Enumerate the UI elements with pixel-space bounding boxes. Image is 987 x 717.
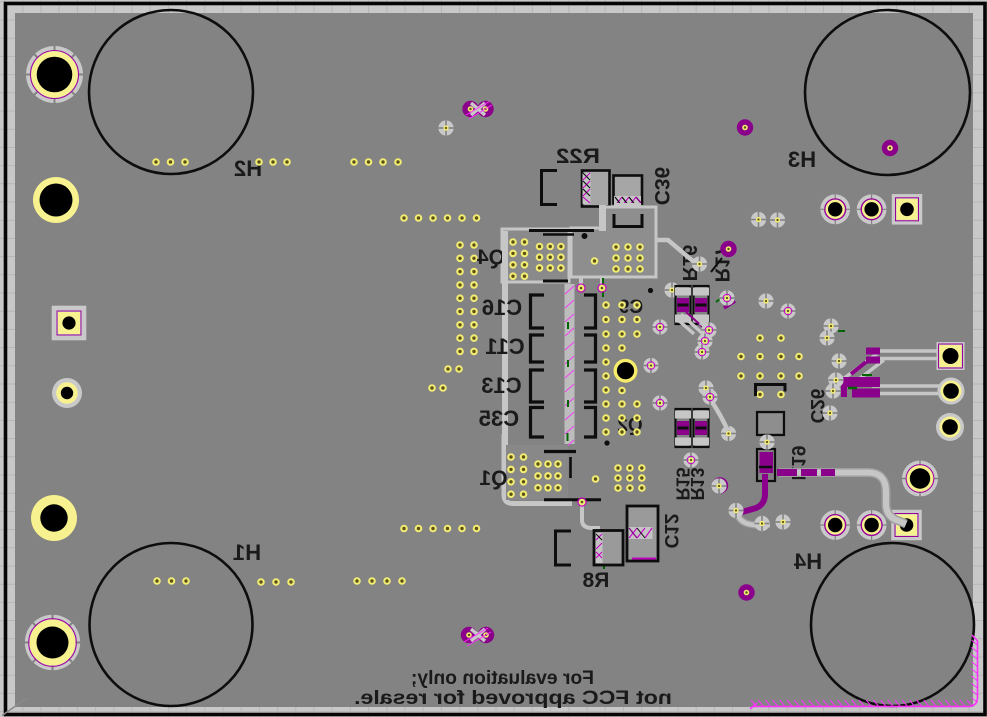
svg-text:H3: H3 [788,147,816,172]
svg-text:H1: H1 [233,540,261,565]
svg-text:C13: C13 [481,373,521,398]
svg-text:C35: C35 [479,406,519,431]
svg-text:C26: C26 [806,389,827,424]
svg-text:Q1: Q1 [479,467,507,490]
svg-text:not FCC approved for resale.: not FCC approved for resale. [354,687,672,709]
svg-text:C16: C16 [482,295,522,320]
svg-text:R8: R8 [582,569,609,592]
svg-text:For evaluation only;: For evaluation only; [411,667,594,689]
svg-text:R13: R13 [687,467,707,500]
svg-text:C11: C11 [485,334,524,359]
svg-text:Q4: Q4 [477,246,505,269]
svg-text:H4: H4 [793,549,822,574]
svg-text:R22: R22 [556,145,600,168]
svg-text:C12: C12 [660,514,681,549]
svg-text:C36: C36 [650,167,673,206]
